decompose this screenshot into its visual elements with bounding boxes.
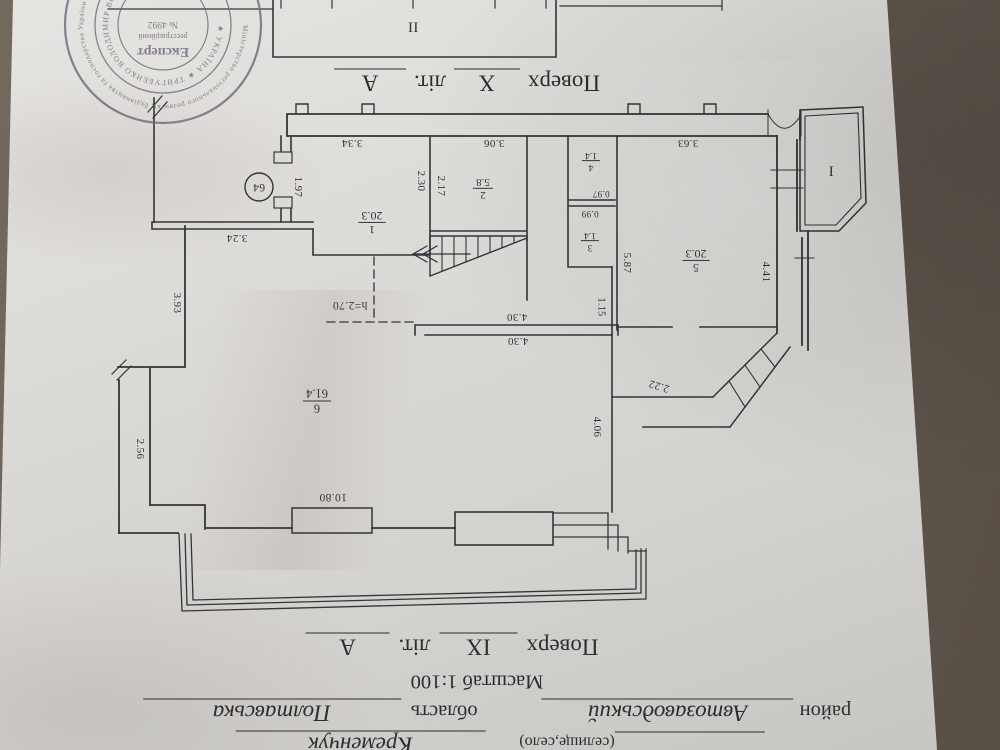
dim-3-06: 3.06: [484, 137, 505, 149]
dim-2-17: 2.17: [435, 176, 447, 197]
room-label-4: 41.4: [582, 150, 600, 172]
floor-x-value: X: [454, 69, 520, 96]
stamp-reg-number: № 4992: [148, 19, 179, 29]
balcony-bay-mark: I: [828, 162, 833, 179]
corner-steps: [553, 513, 646, 553]
dim-3-63: 3.63: [678, 137, 699, 149]
dim-10-80: 10.80: [319, 491, 347, 503]
dim-0-97: 0.97: [592, 189, 609, 199]
caption-settlement: (селище,село) Кременчук: [235, 731, 764, 750]
dim-3-93: 3.93: [171, 293, 183, 314]
caption-floor-x: Поверх X літ. А: [334, 69, 600, 96]
oblast-value: Полтавська: [143, 699, 401, 726]
caption-district-oblast: район Автозаводський область Полтавська: [143, 699, 851, 726]
dim-1-15: 1.15: [596, 297, 607, 316]
dim-2-56: 2.56: [134, 439, 146, 460]
caption-floor-ix: Поверх IX літ. А: [306, 633, 599, 660]
height-mark-label: h=2.70: [333, 299, 368, 311]
dim-5-87: 5.87: [621, 253, 633, 274]
interior-walls: [148, 96, 777, 512]
terrace-railing: [179, 534, 646, 611]
stamp-title: Експерт: [137, 44, 189, 59]
diagonal-window-wall: [612, 333, 790, 427]
settlement-value: Кременчук: [235, 731, 485, 750]
step-block: [455, 512, 553, 545]
room-label-3: 31.4: [581, 230, 599, 252]
staircase-symbol: [413, 236, 527, 276]
dim-4-30-a: 4.30: [507, 311, 528, 323]
bottom-wall: [207, 508, 646, 553]
lit-word: літ.: [399, 634, 431, 660]
dim-4-41: 4.41: [760, 262, 772, 283]
paper-sheet: Міністерство регіонального розвитку, буд…: [0, 0, 1000, 750]
dim-1-97: 1.97: [292, 177, 304, 198]
floor-word: Поверх: [526, 634, 598, 660]
room-label-1: 120.3: [359, 208, 386, 236]
apartment-number: 64: [253, 181, 265, 193]
settlement-word: (селище,село): [519, 733, 614, 750]
lit-ix-value: А: [306, 633, 390, 660]
district-word: район: [800, 700, 852, 723]
dim-2-30: 2.30: [415, 171, 427, 192]
dim-3-24: 3.24: [227, 232, 248, 244]
room-label-2: 25.8: [473, 175, 493, 201]
floor-ix-value: IX: [439, 633, 517, 660]
height-zone-dashed: [327, 257, 415, 322]
dim-4-06: 4.06: [591, 417, 603, 438]
room5-right-wall: [771, 115, 814, 350]
floor-word: Поверх: [528, 70, 600, 96]
lit-word: літ.: [414, 70, 446, 96]
left-exterior-walls: [112, 226, 205, 533]
room-label-6: 661.4: [303, 387, 331, 416]
dim-4-30-b: 4.30: [508, 335, 529, 347]
expert-round-stamp: Міністерство регіонального розвитку, буд…: [38, 0, 288, 132]
dim-0-99: 0.99: [581, 209, 598, 219]
balcony-terrace-mark: II: [408, 18, 419, 35]
oblast-word: область: [411, 700, 478, 723]
photo-of-floor-plan-document: Міністерство регіонального розвитку, буд…: [0, 0, 1000, 750]
room-label-5: 520.3: [683, 246, 710, 274]
scale-text: Масштаб 1:100: [411, 670, 544, 693]
opening-10-80: [292, 508, 372, 533]
stamp-reg-label: реєстраційний: [138, 32, 188, 41]
caption-scale: Масштаб 1:100: [411, 670, 544, 693]
lit-x-value: А: [334, 69, 406, 96]
blank-field-line: [615, 732, 765, 750]
dim-3-34: 3.34: [342, 137, 363, 149]
district-value: Автозаводський: [542, 699, 794, 726]
door-arc: [768, 114, 801, 128]
